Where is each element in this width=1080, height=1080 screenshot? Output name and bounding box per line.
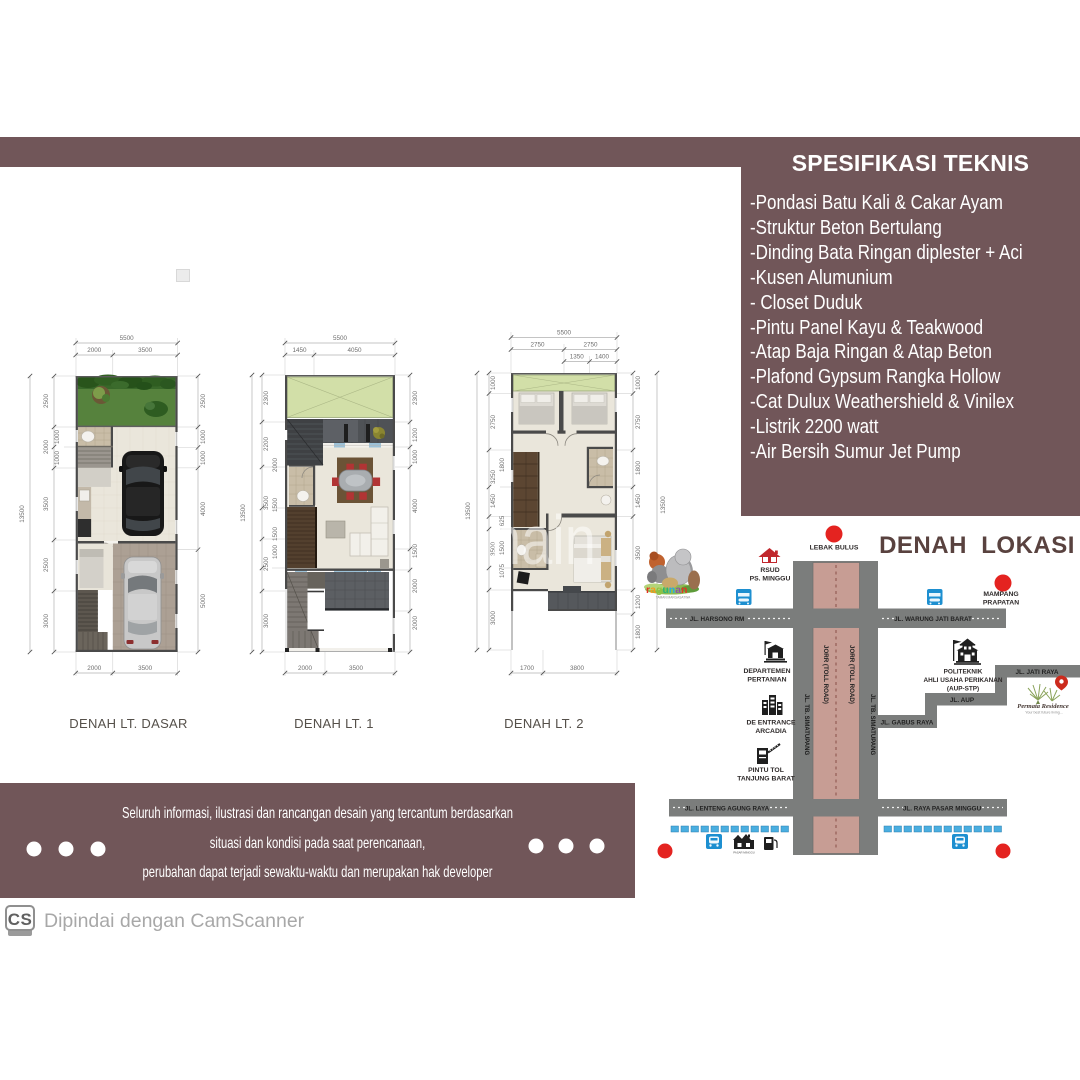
svg-text:3500: 3500 (138, 347, 153, 354)
svg-text:2000: 2000 (412, 616, 419, 631)
svg-text:JL. HARSONO RM: JL. HARSONO RM (690, 616, 745, 623)
svg-text:PRAPATAN: PRAPATAN (983, 600, 1019, 607)
svg-text:1450: 1450 (292, 347, 307, 354)
svg-text:2750: 2750 (530, 342, 545, 349)
svg-text:ARCADIA: ARCADIA (755, 728, 786, 735)
svg-text:MAMPANG: MAMPANG (983, 591, 1018, 598)
svg-text:2000: 2000 (412, 579, 419, 594)
svg-text:(AUP-STP): (AUP-STP) (947, 686, 979, 693)
svg-text:2750: 2750 (583, 342, 598, 349)
svg-text:3500: 3500 (263, 496, 270, 511)
svg-text:1350: 1350 (570, 354, 585, 361)
svg-text:1000: 1000 (635, 376, 642, 391)
svg-text:2750: 2750 (490, 415, 497, 430)
svg-text:4000: 4000 (200, 502, 207, 517)
svg-text:POLITEKNIK: POLITEKNIK (944, 669, 983, 676)
svg-text:4050: 4050 (347, 347, 362, 354)
svg-text:RSUD: RSUD (760, 567, 779, 574)
svg-text:1700: 1700 (520, 665, 535, 672)
svg-text:1000: 1000 (272, 545, 279, 560)
svg-text:PASAR MINGGU: PASAR MINGGU (733, 851, 755, 855)
svg-text:3500: 3500 (138, 665, 153, 672)
svg-text:1500: 1500 (272, 498, 279, 513)
svg-text:5000: 5000 (200, 594, 207, 609)
svg-text:13500: 13500 (19, 505, 26, 523)
svg-text:PS. MINGGU: PS. MINGGU (750, 576, 791, 583)
svg-text:TANJUNG BARAT: TANJUNG BARAT (737, 776, 795, 783)
svg-text:JL. AUP: JL. AUP (950, 697, 975, 704)
svg-text:4000: 4000 (412, 499, 419, 514)
svg-text:1000: 1000 (200, 451, 207, 466)
svg-text:2300: 2300 (412, 391, 419, 406)
svg-text:5500: 5500 (333, 335, 348, 342)
svg-text:1000: 1000 (490, 376, 497, 391)
svg-text:3500: 3500 (43, 497, 50, 512)
svg-text:ragunan: ragunan (646, 584, 687, 596)
svg-text:JL. TB. SIMATUPANG: JL. TB. SIMATUPANG (869, 694, 875, 755)
svg-text:JL. LENTENG AGUNG RAYA: JL. LENTENG AGUNG RAYA (685, 806, 770, 813)
svg-text:1500: 1500 (412, 544, 419, 559)
svg-text:3500: 3500 (349, 665, 364, 672)
svg-text:Permata Residence: Permata Residence (1017, 703, 1069, 710)
svg-text:2500: 2500 (263, 557, 270, 572)
svg-text:1800: 1800 (499, 458, 506, 473)
svg-text:2000: 2000 (272, 458, 279, 473)
svg-text:JORR (TOLL ROAD): JORR (TOLL ROAD) (848, 645, 855, 704)
svg-text:JL. WARUNG JATI BARAT: JL. WARUNG JATI BARAT (894, 616, 972, 623)
svg-text:JORR (TOLL ROAD): JORR (TOLL ROAD) (822, 645, 829, 704)
svg-text:3000: 3000 (490, 611, 497, 626)
svg-text:3000: 3000 (263, 614, 270, 629)
svg-text:JL. GABUS RAYA: JL. GABUS RAYA (881, 720, 934, 727)
svg-text:2000: 2000 (87, 665, 102, 672)
svg-text:PINTU TOL: PINTU TOL (748, 767, 784, 774)
svg-text:LEBAK BULUS: LEBAK BULUS (810, 545, 859, 552)
svg-text:DE ENTRANCE: DE ENTRANCE (746, 720, 796, 727)
svg-text:2000: 2000 (298, 665, 313, 672)
svg-text:1800: 1800 (635, 461, 642, 476)
svg-text:13500: 13500 (240, 504, 247, 522)
svg-text:JL. RAYA PASAR MINGGU: JL. RAYA PASAR MINGGU (903, 806, 982, 813)
svg-text:2200: 2200 (263, 437, 270, 452)
svg-text:5500: 5500 (120, 335, 135, 342)
svg-text:JL. JATI RAYA: JL. JATI RAYA (1015, 669, 1058, 676)
svg-text:1000: 1000 (200, 430, 207, 445)
svg-text:2750: 2750 (635, 415, 642, 430)
svg-text:2000: 2000 (43, 440, 50, 455)
svg-text:1200: 1200 (412, 428, 419, 443)
svg-text:2000: 2000 (87, 347, 102, 354)
svg-text:2500: 2500 (43, 394, 50, 409)
svg-text:2500: 2500 (43, 558, 50, 573)
svg-text:3000: 3000 (43, 614, 50, 629)
svg-text:1000: 1000 (54, 451, 61, 466)
svg-text:Your best future living...: Your best future living... (1025, 711, 1062, 715)
svg-text:DENAH LOKASI: DENAH LOKASI (879, 532, 1075, 559)
svg-text:1500: 1500 (272, 527, 279, 542)
svg-text:13500: 13500 (465, 502, 472, 520)
svg-text:DEPARTEMEN: DEPARTEMEN (743, 668, 790, 675)
svg-text:1000: 1000 (412, 450, 419, 465)
svg-text:1400: 1400 (595, 354, 610, 361)
svg-text:3250: 3250 (490, 470, 497, 485)
svg-text:2300: 2300 (263, 391, 270, 406)
svg-text:2500: 2500 (200, 394, 207, 409)
svg-text:1000: 1000 (54, 430, 61, 445)
svg-text:PERTANIAN: PERTANIAN (747, 677, 786, 684)
svg-text:TAMAN MARGASATWA: TAMAN MARGASATWA (656, 596, 691, 600)
svg-text:AHLI USAHA PERIKANAN: AHLI USAHA PERIKANAN (924, 677, 1003, 684)
svg-text:3800: 3800 (570, 665, 585, 672)
svg-text:JL. TB. SIMATUPANG: JL. TB. SIMATUPANG (803, 694, 809, 755)
svg-text:5500: 5500 (557, 330, 572, 337)
